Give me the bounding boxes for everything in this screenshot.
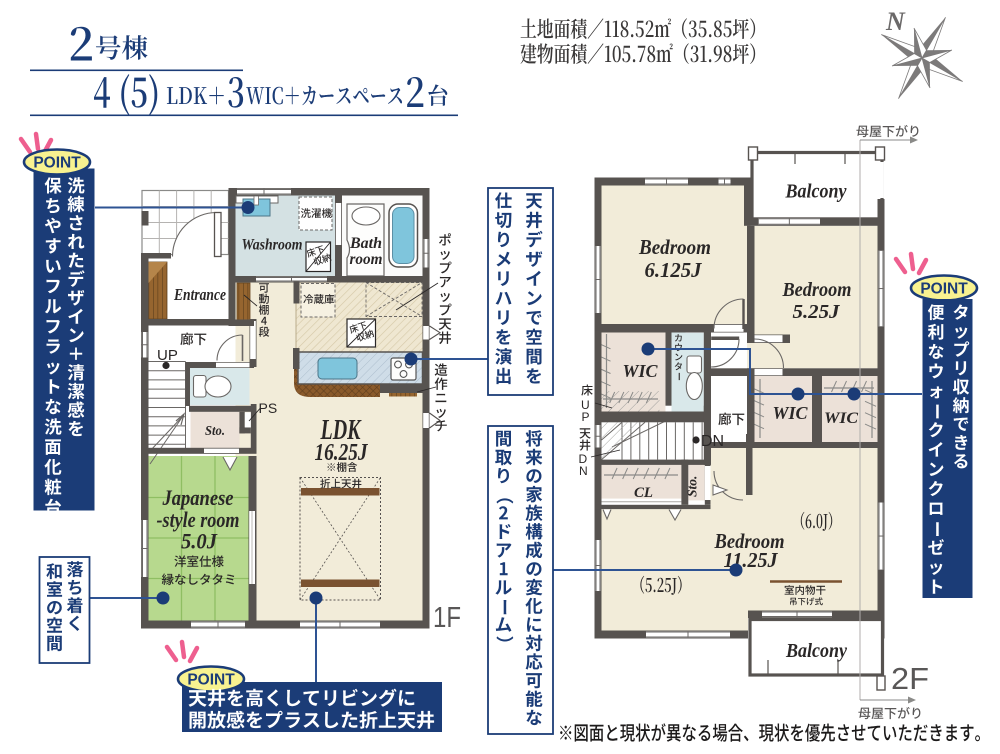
svg-text:Sto.: Sto. (205, 423, 225, 438)
svg-text:UP: UP (157, 347, 178, 364)
svg-text:WIC: WIC (824, 410, 858, 427)
svg-text:5.0J: 5.0J (181, 529, 218, 554)
svg-text:WIC: WIC (623, 361, 659, 381)
svg-text:16.25J: 16.25J (315, 440, 369, 466)
svg-text:POINT: POINT (33, 155, 81, 172)
svg-text:1F: 1F (433, 602, 461, 634)
svg-text:Balcony: Balcony (785, 181, 847, 203)
svg-text:N: N (885, 7, 906, 36)
svg-text:Balcony: Balcony (785, 640, 847, 662)
svg-text:PS: PS (259, 400, 278, 416)
svg-text:POINT: POINT (187, 672, 235, 689)
svg-text:POINT: POINT (920, 281, 968, 298)
svg-text:6.125J: 6.125J (645, 258, 703, 282)
svg-text:WIC: WIC (773, 403, 809, 423)
svg-text:P: P (582, 410, 590, 424)
svg-text:room: room (350, 251, 383, 268)
svg-text:Bedroom: Bedroom (638, 235, 711, 259)
svg-text:DN: DN (701, 433, 724, 450)
svg-text:Bath: Bath (349, 235, 382, 252)
svg-text:Sto.: Sto. (685, 476, 700, 497)
svg-text:Washroom: Washroom (242, 237, 303, 254)
svg-text:5.25J: 5.25J (793, 301, 841, 323)
svg-text:Bedroom: Bedroom (782, 279, 852, 301)
svg-text:2F: 2F (891, 661, 929, 696)
svg-text:CL: CL (634, 485, 653, 501)
svg-text:Entrance: Entrance (173, 285, 226, 304)
svg-text:N: N (579, 464, 588, 478)
